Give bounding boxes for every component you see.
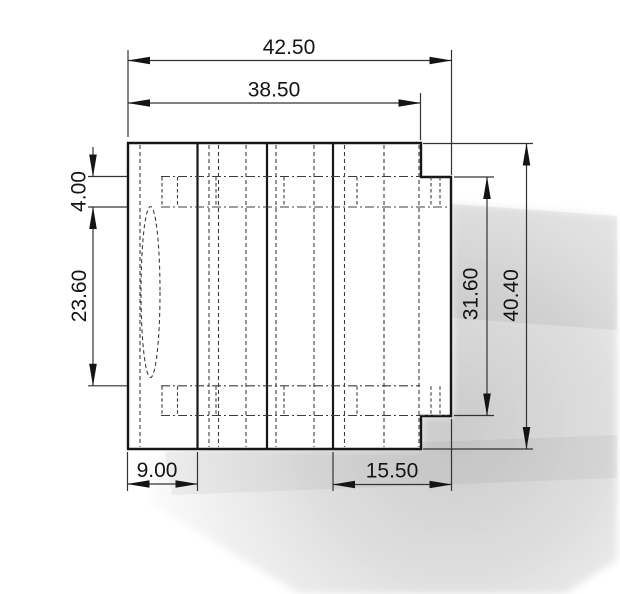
part-outline [128,143,451,449]
dimension-label: 9.00 [137,459,178,482]
dimension-label: 38.50 [248,79,301,102]
dimension-label: 23.60 [68,270,91,323]
part-body [128,143,451,449]
dimension-label: 4.00 [68,171,91,212]
dimension-label: 40.40 [500,269,523,322]
dimension-left-height: 23.60 [68,207,127,386]
dimension-label: 15.50 [366,460,419,483]
dimension-top-offset: 4.00 [68,147,128,212]
dimension-label: 42.50 [263,36,316,59]
dimension-label: 31.60 [460,268,483,321]
cad-drawing-canvas: 42.50 38.50 4.00 23.60 31.60 [0,0,620,594]
dimension-inner-width: 38.50 [128,79,421,141]
drawing-svg: 42.50 38.50 4.00 23.60 31.60 [0,0,620,594]
